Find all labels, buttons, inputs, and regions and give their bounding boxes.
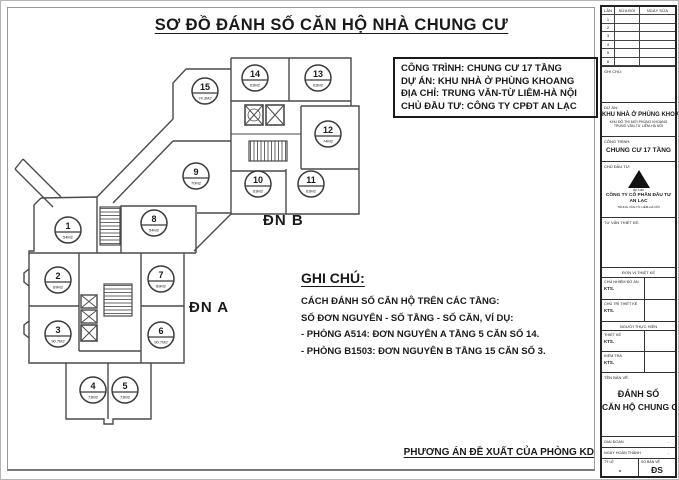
building-box: CÔNG TRÌNH: CHUNG CƯ 17 TẦNG <box>602 137 675 162</box>
sig-section-header-1: NGƯỜI THỰC HIỆN <box>602 322 675 331</box>
blueprint-sheet: SƠ ĐỒ ĐÁNH SỐ CĂN HỘ NHÀ CHUNG CƯ CÔNG T… <box>0 0 679 480</box>
meta-label: NGÀY HOÀN THÀNH <box>602 451 668 455</box>
sig-role-label: THIẾT KẾ <box>604 333 642 338</box>
title-block: LẦNSỬA ĐỔINGÀY SỬA123456 GHI CHÚ: DỰ ÁN:… <box>600 5 677 478</box>
svg-text:90.7M2: 90.7M2 <box>154 340 168 345</box>
svg-text:15: 15 <box>200 82 210 92</box>
sig-role-label: CHỦ NHIỆM ĐỒ ÁN <box>604 280 642 285</box>
svg-text:69M2: 69M2 <box>53 285 64 290</box>
apartment-12: 1274M2 <box>315 121 341 147</box>
svg-text:54M2: 54M2 <box>63 235 74 240</box>
apartment-5: 573M2 <box>112 377 138 403</box>
revision-row-date <box>640 15 675 23</box>
project-name: KHU NHÀ Ở PHÙNG KHOANG <box>602 112 675 118</box>
apartment-8: 854M2 <box>141 210 167 236</box>
project-label: DỰ ÁN: <box>602 103 675 110</box>
footer-proposal-note: PHƯƠNG ÁN ĐỀ XUẤT CỦA PHÒNG KD <box>321 447 594 458</box>
revision-row-desc <box>615 58 640 66</box>
sheet-cell: SỐ BẢN VẼ ĐS <box>639 459 675 476</box>
legend-line-1: CÁCH ĐÁNH SỐ CĂN HỘ TRÊN CÁC TẦNG: <box>301 294 591 311</box>
building-name: CHUNG CƯ 17 TẦNG <box>602 147 675 154</box>
apartment-11: 1163M2 <box>298 171 324 197</box>
core-unit-b <box>231 105 301 161</box>
apartment-circles: 154M2269M2390.7M2473M2573M2690.7M2769M28… <box>45 65 341 403</box>
revision-row-num: 2 <box>602 24 615 32</box>
scale-value: - <box>602 465 638 475</box>
svg-text:73M2: 73M2 <box>88 395 99 400</box>
sig-row-1-1: KIỂM TRAKTS. <box>602 352 675 373</box>
sig-row-1-0: THIẾT KẾKTS. <box>602 331 675 352</box>
sig-role-label: KIỂM TRA <box>604 354 642 359</box>
meta-label: GIAI ĐOẠN <box>602 440 668 444</box>
svg-text:70M2: 70M2 <box>191 181 202 186</box>
scale-label: TỶ LỆ <box>602 459 638 464</box>
legend-line-3: - PHÒNG A514: ĐƠN NGUYÊN A TẦNG 5 CĂN SỐ… <box>301 327 591 344</box>
revision-row-desc <box>615 24 640 32</box>
project-sub: KHU ĐÔ THỊ MỚI PHÙNG KHOANG TRUNG VĂN-TỪ… <box>602 120 675 129</box>
signature-area: ĐƠN VỊ THIẾT KẾCHỦ NHIỆM ĐỒ ÁNKTS.CHỦ TR… <box>602 268 675 373</box>
meta-value: - <box>668 440 675 444</box>
meta-row-1: NGÀY HOÀN THÀNH- <box>602 448 675 459</box>
svg-text:54M2: 54M2 <box>149 228 160 233</box>
apartment-3: 390.7M2 <box>45 321 71 347</box>
page-title: SƠ ĐỒ ĐÁNH SỐ CĂN HỘ NHÀ CHUNG CƯ <box>109 16 554 35</box>
title-block-note-box: GHI CHÚ: <box>602 67 675 103</box>
signature-box <box>645 352 675 372</box>
drawing-name-box: TÊN BẢN VẼ: ĐÁNH SỐ CĂN HỘ CHUNG CƯ <box>602 373 675 437</box>
legend-line-2: SỐ ĐƠN NGUYÊN - SỐ TẦNG - SỐ CĂN, VÍ DỤ: <box>301 311 591 328</box>
svg-text:14: 14 <box>250 69 260 79</box>
an-lac-logo-icon <box>628 170 650 188</box>
sig-row-0-1: CHỦ TRÌ THIẾT KẾKTS. <box>602 300 675 322</box>
apartment-9: 970M2 <box>183 163 209 189</box>
revision-header-2: NGÀY SỬA <box>640 7 675 15</box>
revision-row-num: 6 <box>602 58 615 66</box>
meta-value: - <box>668 451 675 455</box>
drawing-name-line1: ĐÁNH SỐ <box>602 389 675 399</box>
sig-role-label: CHỦ TRÌ THIẾT KẾ <box>604 302 642 307</box>
apartment-6: 690.7M2 <box>148 322 174 348</box>
sig-row-0-0: CHỦ NHIỆM ĐỒ ÁNKTS. <box>602 278 675 300</box>
apartment-2: 269M2 <box>45 267 71 293</box>
project-box: DỰ ÁN: KHU NHÀ Ở PHÙNG KHOANG KHU ĐÔ THỊ… <box>602 103 675 137</box>
apartment-4: 473M2 <box>80 377 106 403</box>
svg-text:2: 2 <box>55 271 60 281</box>
svg-text:13: 13 <box>313 69 323 79</box>
svg-text:74.3M2: 74.3M2 <box>198 96 212 101</box>
apartment-1: 154M2 <box>55 217 81 243</box>
revision-row-date <box>640 41 675 49</box>
sig-role-name: KTS. <box>604 308 642 313</box>
legend-notes: GHI CHÚ: CÁCH ĐÁNH SỐ CĂN HỘ TRÊN CÁC TẦ… <box>301 270 591 360</box>
svg-text:5: 5 <box>122 381 127 391</box>
revision-table: LẦNSỬA ĐỔINGÀY SỬA123456 <box>602 7 675 67</box>
svg-text:63M2: 63M2 <box>306 189 317 194</box>
revision-row-num: 4 <box>602 41 615 49</box>
floor-plan: 154M2269M2390.7M2473M2573M2690.7M2769M28… <box>1 41 601 441</box>
svg-text:63M2: 63M2 <box>250 83 261 88</box>
investor-box: CHỦ ĐẦU TƯ: An Lạc CÔNG TY CỔ PHẦN ĐẦU T… <box>602 162 675 218</box>
svg-text:63M2: 63M2 <box>313 83 324 88</box>
signature-box <box>645 331 675 351</box>
core-unit-a <box>81 207 132 341</box>
revision-row-date <box>640 24 675 32</box>
sig-role: KIỂM TRAKTS. <box>602 352 645 372</box>
svg-text:10: 10 <box>253 175 263 185</box>
apartment-14: 1463M2 <box>242 65 268 91</box>
building-label: CÔNG TRÌNH: <box>602 137 675 144</box>
legend-line-4: - PHÒNG B1503: ĐƠN NGUYÊN B TẦNG 15 CĂN … <box>301 344 591 361</box>
signature-box <box>645 278 675 299</box>
svg-text:6: 6 <box>158 326 163 336</box>
apartment-7: 769M2 <box>148 266 174 292</box>
drawing-label: TÊN BẢN VẼ: <box>602 373 675 380</box>
apartment-15: 1574.3M2 <box>192 78 218 104</box>
svg-text:4: 4 <box>90 381 95 391</box>
legend-heading: GHI CHÚ: <box>301 270 591 286</box>
svg-text:74M2: 74M2 <box>323 139 334 144</box>
meta-row-0: GIAI ĐOẠN- <box>602 437 675 448</box>
revision-row-desc <box>615 41 640 49</box>
sig-role: THIẾT KẾKTS. <box>602 331 645 351</box>
sheet-label: SỐ BẢN VẼ <box>639 459 675 464</box>
revision-header-1: SỬA ĐỔI <box>615 7 640 15</box>
svg-text:8: 8 <box>151 214 156 224</box>
revision-row-desc <box>615 15 640 23</box>
signature-box <box>645 300 675 321</box>
sig-role-name: KTS. <box>604 339 642 344</box>
meta-rows: GIAI ĐOẠN-NGÀY HOÀN THÀNH- <box>602 437 675 459</box>
revision-row-num: 1 <box>602 15 615 23</box>
svg-text:9: 9 <box>193 167 198 177</box>
svg-text:12: 12 <box>323 125 333 135</box>
drawing-name-line2: CĂN HỘ CHUNG CƯ <box>602 402 675 412</box>
svg-text:3: 3 <box>55 325 60 335</box>
sig-role-name: KTS. <box>604 286 642 291</box>
sig-section-header-0: ĐƠN VỊ THIẾT KẾ <box>602 268 675 278</box>
revision-row-desc <box>615 49 640 57</box>
apartment-10: 1063M2 <box>245 171 271 197</box>
svg-text:7: 7 <box>158 270 163 280</box>
consultant-box: TƯ VẤN THIẾT KẾ: <box>602 218 675 268</box>
svg-text:69M2: 69M2 <box>156 284 167 289</box>
revision-row-desc <box>615 32 640 40</box>
sig-role: CHỦ TRÌ THIẾT KẾKTS. <box>602 300 645 321</box>
logo-caption: An Lạc <box>602 188 675 192</box>
revision-row-date <box>640 58 675 66</box>
revision-header-0: LẦN <box>602 7 615 15</box>
apartment-13: 1363M2 <box>305 65 331 91</box>
scale-cell: TỶ LỆ - <box>602 459 639 476</box>
svg-text:1: 1 <box>65 221 70 231</box>
scale-sheet-row: TỶ LỆ - SỐ BẢN VẼ ĐS <box>602 459 675 476</box>
investor-label: CHỦ ĐẦU TƯ: <box>602 162 675 169</box>
unit-b-label: ĐN B <box>263 212 304 229</box>
svg-text:73M2: 73M2 <box>120 395 131 400</box>
unit-a-label: ĐN A <box>189 299 229 316</box>
sig-role-name: KTS. <box>604 360 642 365</box>
svg-text:11: 11 <box>306 175 316 185</box>
revision-row-num: 3 <box>602 32 615 40</box>
investor-name: CÔNG TY CỔ PHẦN ĐẦU TƯ AN LẠC <box>602 193 675 204</box>
sig-role: CHỦ NHIỆM ĐỒ ÁNKTS. <box>602 278 645 299</box>
investor-sub: TRUNG VĂN-TỪ LIÊM-HÀ NỘI <box>602 205 675 209</box>
sheet-number: ĐS <box>639 465 675 475</box>
revision-row-date <box>640 49 675 57</box>
revision-row-date <box>640 32 675 40</box>
svg-text:90.7M2: 90.7M2 <box>51 339 65 344</box>
consultant-label: TƯ VẤN THIẾT KẾ: <box>602 218 675 225</box>
revision-row-num: 5 <box>602 49 615 57</box>
svg-text:63M2: 63M2 <box>253 189 264 194</box>
note-label: GHI CHÚ: <box>602 67 675 74</box>
